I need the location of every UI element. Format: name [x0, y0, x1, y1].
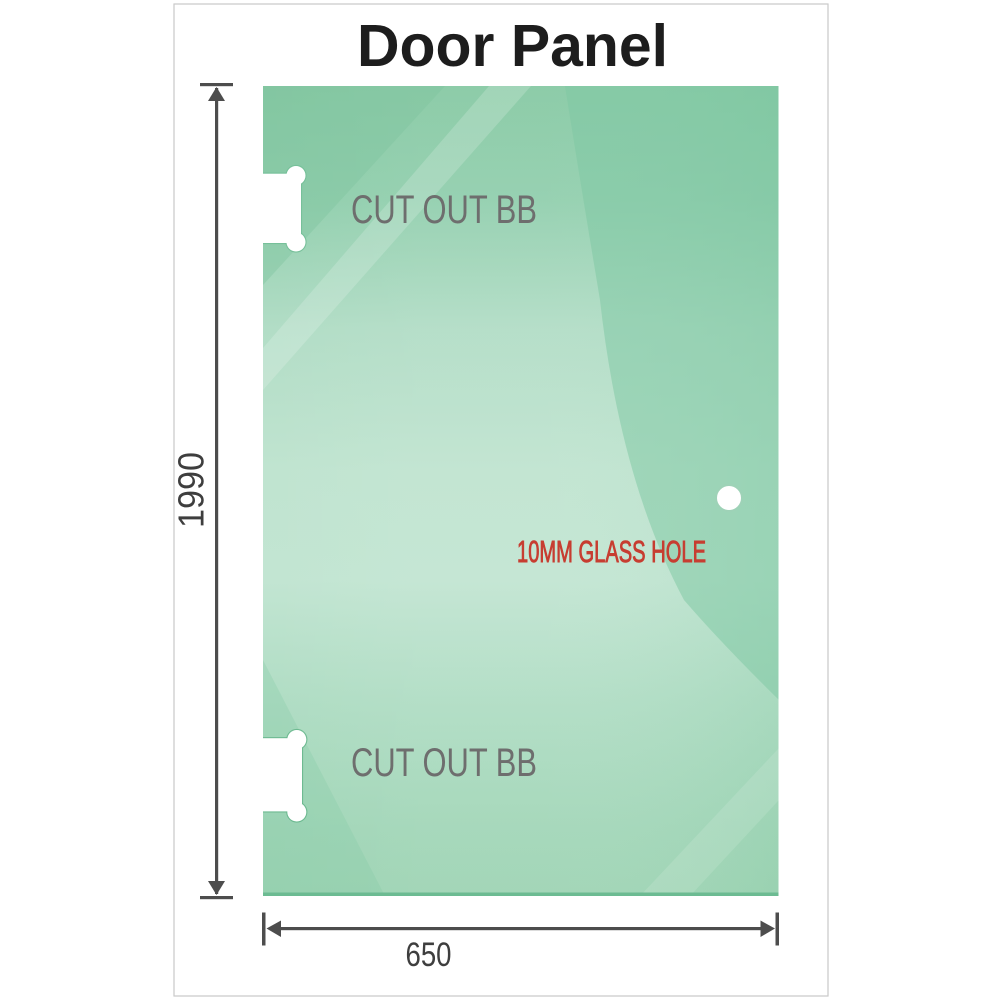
svg-text:1990: 1990: [171, 452, 212, 528]
svg-text:650: 650: [406, 936, 452, 974]
svg-text:Door Panel: Door Panel: [357, 12, 668, 79]
svg-text:CUT OUT BB: CUT OUT BB: [351, 741, 537, 785]
svg-text:CUT OUT BB: CUT OUT BB: [351, 188, 537, 232]
svg-text:10MM GLASS HOLE: 10MM GLASS HOLE: [517, 535, 706, 569]
